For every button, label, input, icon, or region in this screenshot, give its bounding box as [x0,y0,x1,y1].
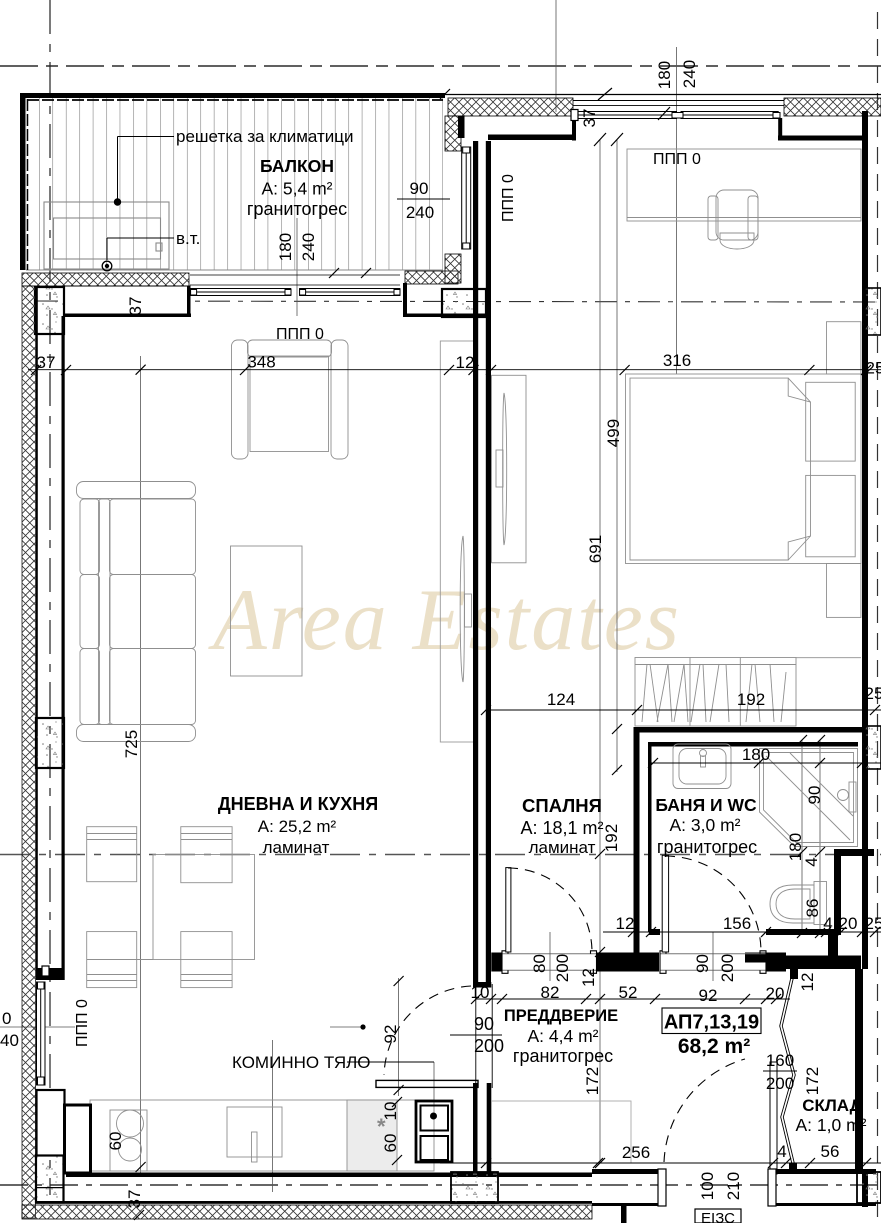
svg-text:4: 4 [823,914,832,933]
svg-text:А: 3,0 m²: А: 3,0 m² [670,815,741,835]
svg-text:ППП 0: ППП 0 [653,151,701,168]
svg-text:68,2 m²: 68,2 m² [678,1035,750,1058]
svg-text:12: 12 [798,973,817,992]
svg-text:92: 92 [381,1025,400,1044]
svg-text:гранитогрес: гранитогрес [247,199,347,219]
svg-text:гранитогрес: гранитогрес [513,1046,613,1066]
svg-text:316: 316 [663,351,691,370]
svg-text:180: 180 [786,833,805,861]
svg-text:160: 160 [766,1051,794,1070]
svg-text:Area Estates: Area Estates [208,572,681,669]
svg-text:решетка за климатици: решетка за климатици [176,127,354,146]
svg-text:37: 37 [37,353,56,372]
svg-text:10: 10 [471,983,490,1002]
svg-text:в.т.: в.т. [176,229,200,248]
svg-text:200: 200 [718,954,737,982]
svg-text:25: 25 [865,914,881,933]
svg-text:А: 5,4 m²: А: 5,4 m² [262,179,333,199]
svg-text:А: 4,4 m²: А: 4,4 m² [528,1026,599,1046]
svg-text:БАНЯ И WC: БАНЯ И WC [655,795,757,815]
svg-text:210: 210 [724,1172,743,1200]
svg-text:ПРЕДДВЕРИЕ: ПРЕДДВЕРИЕ [504,1007,618,1025]
svg-text:25: 25 [866,359,881,378]
svg-text:0: 0 [2,1009,11,1028]
svg-text:172: 172 [803,1067,822,1095]
svg-text:90: 90 [474,1014,494,1034]
svg-text:А: 18,1 m²: А: 18,1 m² [520,818,603,838]
svg-text:А: 1,0 m²: А: 1,0 m² [796,1115,867,1135]
svg-text:СКЛАД: СКЛАД [802,1096,862,1115]
svg-text:ППП 0: ППП 0 [500,174,517,222]
svg-text:ЕІЗС: ЕІЗС [701,1210,735,1223]
svg-text:180: 180 [276,233,295,261]
svg-text:ламинат: ламинат [263,838,330,857]
svg-text:ППП 0: ППП 0 [276,326,324,343]
svg-text:37: 37 [580,109,599,128]
svg-text:АП7,13,19: АП7,13,19 [664,1012,759,1034]
svg-text:240: 240 [680,60,699,88]
svg-text:240: 240 [406,203,434,222]
svg-text:180: 180 [655,61,674,89]
svg-text:12: 12 [579,968,598,987]
svg-text:192: 192 [602,824,621,852]
svg-text:ДНЕВНА И КУХНЯ: ДНЕВНА И КУХНЯ [218,794,378,814]
svg-text:СПАЛНЯ: СПАЛНЯ [522,795,602,816]
svg-text:40: 40 [0,1031,19,1050]
svg-text:20: 20 [839,914,858,933]
svg-text:80: 80 [530,954,549,973]
svg-text:гранитогрес: гранитогрес [657,837,757,857]
svg-text:37: 37 [126,297,145,316]
svg-text:60: 60 [106,1132,125,1151]
svg-text:100: 100 [698,1172,717,1200]
svg-text:90: 90 [693,954,712,973]
svg-text:56: 56 [821,1142,840,1161]
svg-text:691: 691 [586,535,605,563]
svg-text:37: 37 [125,1190,144,1209]
svg-text:БАЛКОН: БАЛКОН [260,156,334,176]
svg-text:20: 20 [766,984,785,1003]
svg-text:240: 240 [299,233,318,261]
svg-text:ППП 0: ППП 0 [74,999,91,1047]
svg-text:90: 90 [410,179,429,198]
svg-text:172: 172 [583,1067,602,1095]
svg-text:200: 200 [553,954,572,982]
svg-text:90: 90 [805,786,824,805]
svg-text:4: 4 [802,857,821,866]
svg-text:348: 348 [247,353,275,372]
svg-text:725: 725 [122,730,141,758]
svg-text:256: 256 [622,1143,650,1162]
svg-text:156: 156 [723,914,751,933]
svg-text:499: 499 [604,419,623,447]
svg-text:200: 200 [766,1074,794,1093]
svg-text:ламинат: ламинат [529,838,596,857]
svg-text:12: 12 [616,914,635,933]
svg-text:180: 180 [742,745,770,764]
svg-text:86: 86 [803,899,822,918]
svg-text:124: 124 [547,690,575,709]
svg-text:200: 200 [474,1036,504,1056]
svg-text:*: * [377,1114,386,1139]
svg-text:4: 4 [777,1142,786,1161]
svg-text:82: 82 [541,983,560,1002]
svg-text:12: 12 [456,353,475,372]
svg-text:52: 52 [619,983,638,1002]
svg-text:А: 25,2 m²: А: 25,2 m² [258,817,337,836]
svg-text:92: 92 [699,986,718,1005]
svg-text:25: 25 [865,684,881,703]
svg-text:192: 192 [737,690,765,709]
